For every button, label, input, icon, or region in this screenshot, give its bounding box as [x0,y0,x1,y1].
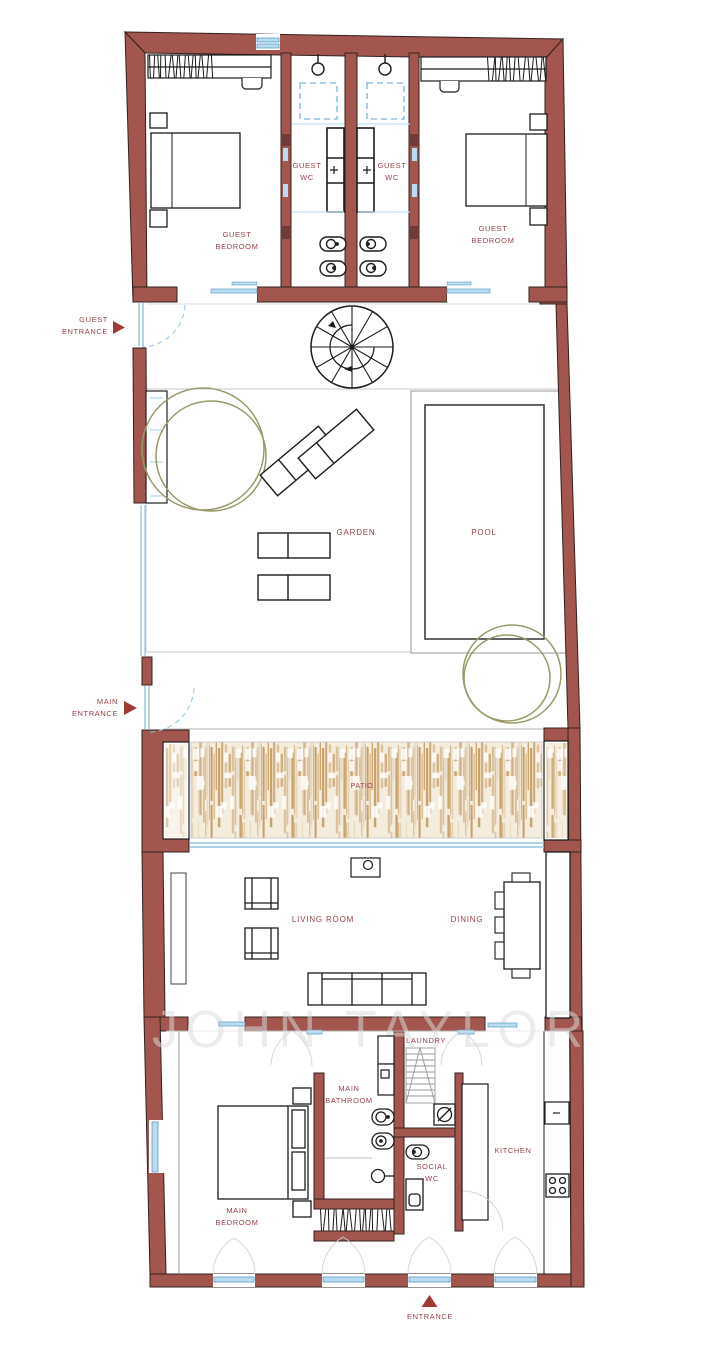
svg-text:SOCIAL: SOCIAL [416,1162,447,1171]
svg-text:WC: WC [300,173,314,182]
svg-text:JOHN TAYLOR: JOHN TAYLOR [152,1001,588,1059]
svg-text:ENTRANCE: ENTRANCE [62,327,108,336]
svg-text:BEDROOM: BEDROOM [472,236,515,245]
svg-text:POOL: POOL [471,528,496,537]
svg-text:ENTRANCE: ENTRANCE [407,1312,453,1321]
svg-text:WC: WC [425,1174,439,1183]
svg-text:PATIO: PATIO [351,783,374,790]
svg-text:KITCHEN: KITCHEN [494,1146,531,1155]
svg-text:MAIN: MAIN [226,1206,247,1215]
svg-text:ENTRANCE: ENTRANCE [72,709,118,718]
svg-text:BEDROOM: BEDROOM [216,1218,259,1227]
svg-text:GUEST: GUEST [79,315,108,324]
svg-text:DINING: DINING [451,915,484,924]
svg-text:BATHROOM: BATHROOM [325,1096,373,1105]
svg-text:MAIN: MAIN [97,697,118,706]
svg-text:GARDEN: GARDEN [336,528,375,537]
svg-text:GUEST: GUEST [293,161,322,170]
svg-text:GUEST: GUEST [223,230,252,239]
svg-text:GUEST: GUEST [479,224,508,233]
svg-text:MAIN: MAIN [338,1084,359,1093]
svg-text:WC: WC [385,173,399,182]
svg-text:LIVING ROOM: LIVING ROOM [292,915,354,924]
svg-text:BEDROOM: BEDROOM [216,242,259,251]
svg-text:LAUNDRY: LAUNDRY [406,1036,446,1045]
svg-text:GUEST: GUEST [378,161,407,170]
